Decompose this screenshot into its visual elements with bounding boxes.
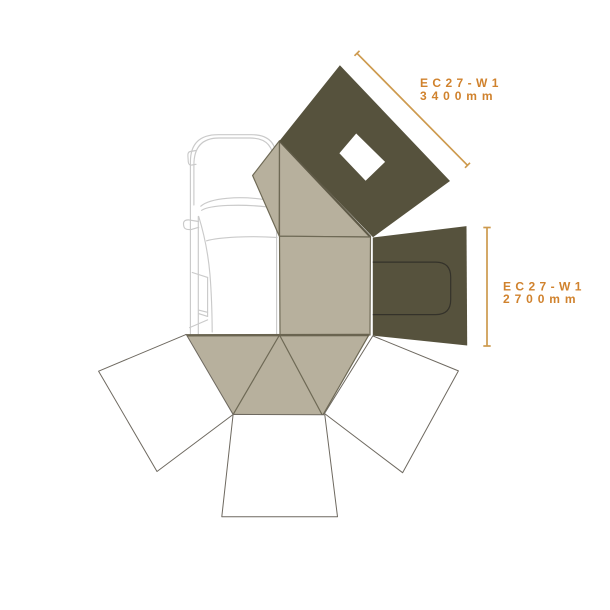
svg-text:2700mm: 2700mm xyxy=(503,292,580,306)
svg-text:3400mm: 3400mm xyxy=(420,89,497,103)
svg-text:EC27-W1: EC27-W1 xyxy=(420,76,503,90)
